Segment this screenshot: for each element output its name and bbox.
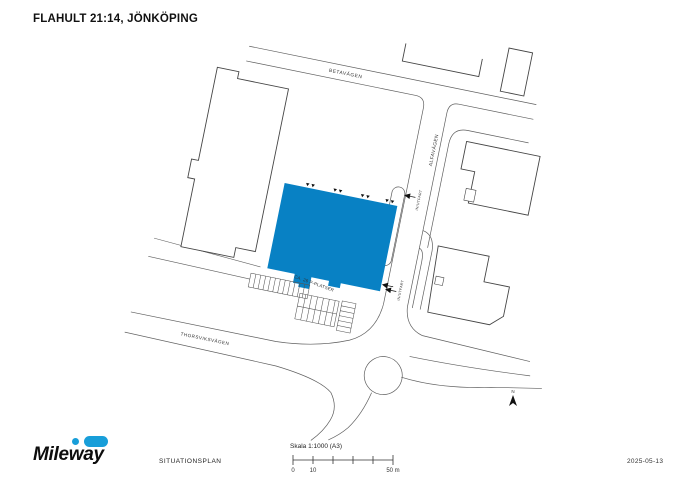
street-label-alfavagen: ALFAVÄGEN: [427, 133, 440, 166]
north-label: N: [511, 389, 514, 394]
site-plan-drawing: BETAVÄGEN ALFAVÄGEN IN/UTFART IN/UTFART …: [0, 0, 700, 493]
scale-tick-10: 10: [310, 468, 317, 473]
scale-block: Skala 1:1000 (A3) 0 10 50 m: [290, 443, 410, 478]
building-west: [174, 66, 290, 261]
building-southeast-detail: [435, 276, 444, 285]
scale-tick-0: 0: [291, 468, 295, 473]
label-in-utfart-lower: IN/UTFART: [397, 279, 405, 301]
label-in-utfart-upper: IN/UTFART: [415, 189, 423, 211]
road-southwest-exit: [328, 386, 371, 446]
scale-label: Skala 1:1000 (A3): [290, 443, 410, 450]
document-type-label: SITUATIONSPLAN: [159, 458, 222, 465]
building-east: [455, 141, 540, 215]
building-east-detail: [464, 188, 476, 202]
street-label-thorsviksvagen: THORSVIKSVÄGEN: [180, 330, 230, 346]
date-label: 2025-05-13: [627, 458, 663, 465]
road-east-exit-mid: [410, 352, 531, 381]
logo-wordmark: Mileway: [33, 444, 104, 466]
roundabout: [361, 353, 406, 398]
building-northeast: [500, 48, 532, 96]
mileway-logo: Mileway: [33, 432, 163, 468]
north-arrow: N: [509, 389, 517, 406]
in-utfart-arrow-lower: [384, 286, 391, 293]
scale-tick-50: 50 m: [386, 468, 399, 473]
scale-bar: 0 10 50 m: [290, 453, 405, 473]
road-thorsviksvagen-south: [111, 332, 341, 444]
road-betavagen-north-edge: [249, 46, 536, 104]
north-arrow-icon: [509, 395, 517, 406]
situationsplan-page: FLAHULT 21:14, JÖNKÖPING: [0, 0, 700, 493]
building-north: [402, 43, 482, 76]
driveway-edge-2: [407, 248, 424, 308]
building-southeast: [425, 246, 515, 327]
highlighted-building: [265, 183, 397, 303]
street-label-betavagen: BETAVÄGEN: [328, 67, 363, 81]
site-plan: BETAVÄGEN ALFAVÄGEN IN/UTFART IN/UTFART …: [111, 0, 607, 483]
